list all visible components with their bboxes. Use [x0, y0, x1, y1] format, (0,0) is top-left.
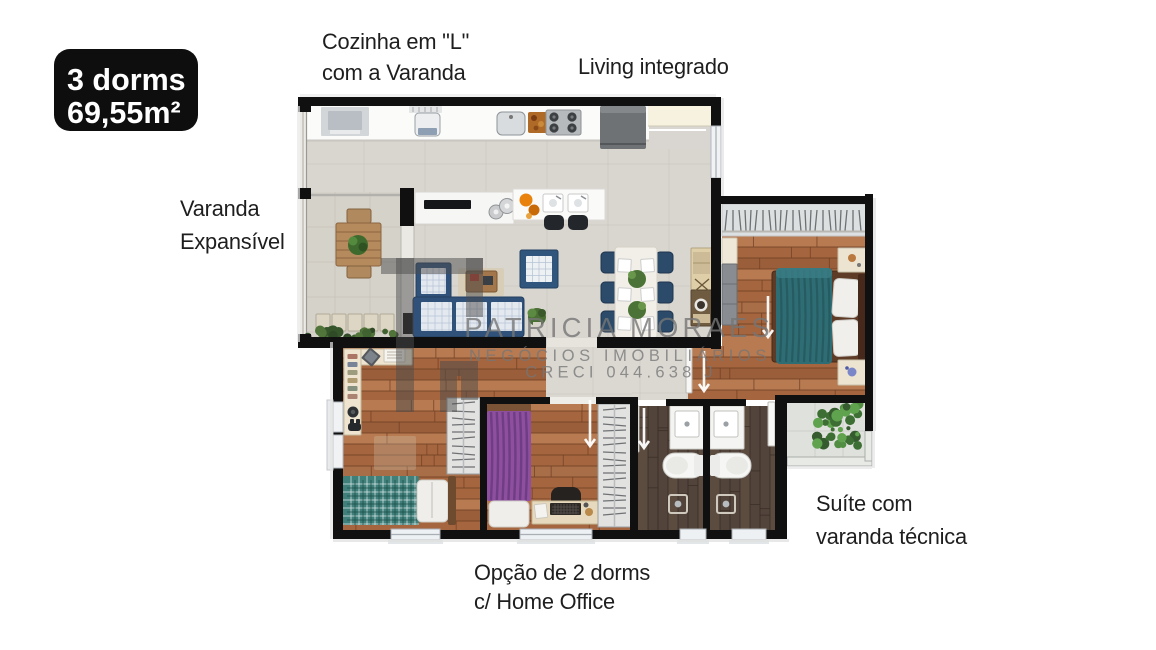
svg-text:Suíte com: Suíte com — [816, 491, 912, 516]
svg-text:Opção de 2 dorms: Opção de 2 dorms — [474, 560, 650, 585]
svg-text:PATRICIA MORAES: PATRICIA MORAES — [464, 312, 774, 343]
svg-text:com a Varanda: com a Varanda — [322, 60, 467, 85]
svg-text:Cozinha em "L": Cozinha em "L" — [322, 29, 469, 54]
svg-text:Varanda: Varanda — [180, 196, 260, 221]
svg-text:c/ Home Office: c/ Home Office — [474, 589, 615, 614]
svg-text:69,55m²: 69,55m² — [67, 96, 181, 130]
svg-text:Expansível: Expansível — [180, 229, 285, 254]
svg-text:CRECI 044.638 J: CRECI 044.638 J — [525, 364, 716, 382]
svg-text:3 dorms: 3 dorms — [67, 63, 186, 97]
svg-text:NEGÓCIOS IMOBILIÁRIOS: NEGÓCIOS IMOBILIÁRIOS — [469, 346, 771, 365]
svg-text:varanda técnica: varanda técnica — [816, 524, 968, 549]
svg-text:Living integrado: Living integrado — [578, 54, 729, 79]
